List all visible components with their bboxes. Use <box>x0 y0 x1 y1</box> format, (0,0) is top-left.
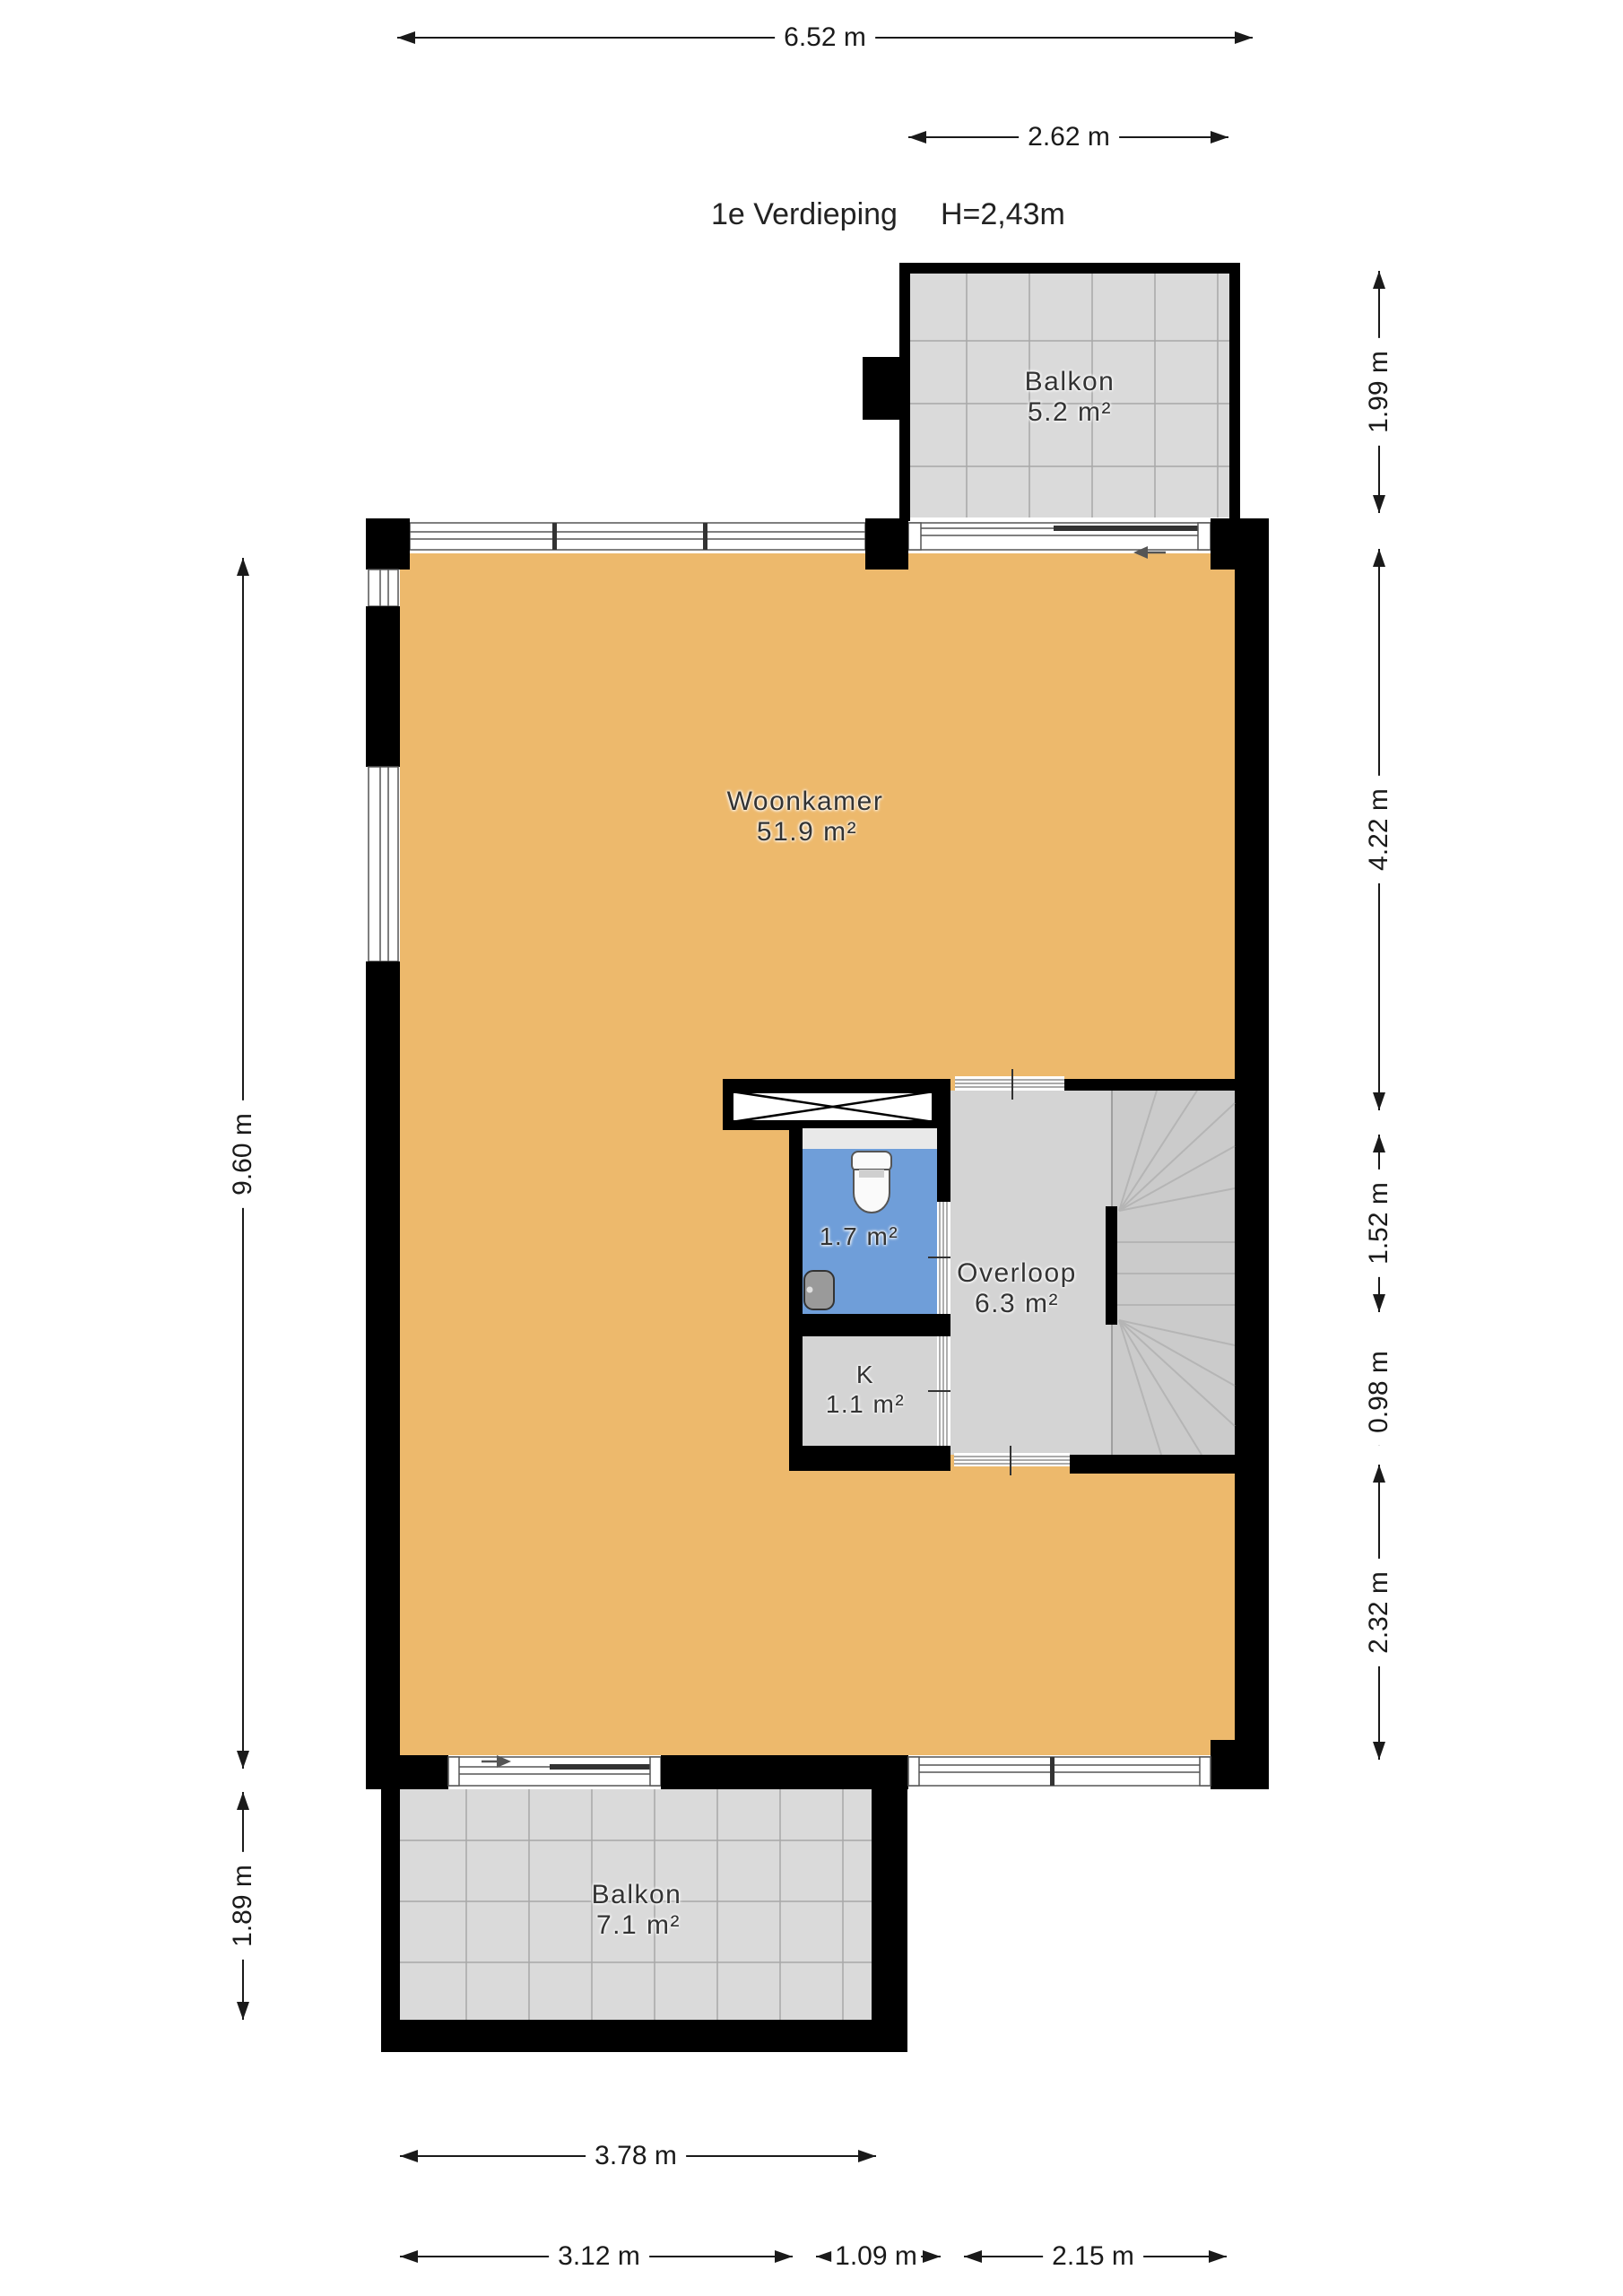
balcony-top-wall-north <box>899 263 1240 274</box>
wall-corner-se <box>1211 1740 1269 1789</box>
shaft <box>723 1079 950 1130</box>
dim-balcony-bottom-height: 1.89 m <box>227 1852 259 1960</box>
floor-name: 1e Verdieping <box>711 197 898 231</box>
dim-right-woonkamer: 4.22 m <box>1363 776 1395 883</box>
window-north-large <box>410 523 865 550</box>
dim-right-balcony-top: 1.99 m <box>1363 338 1395 446</box>
overloop-wall-north <box>1064 1079 1235 1091</box>
balcony-top-door-slider <box>1054 526 1202 531</box>
dim-bottom-left: 3.12 m <box>549 2240 649 2273</box>
dim-balcony-top-width: 2.62 m <box>1019 121 1119 153</box>
plan-title: 1e VerdiepingH=2,43m <box>711 197 1108 232</box>
dim-bottom-middle: 1.09 m <box>831 2240 921 2273</box>
toilet-cistern-ledge <box>803 1128 937 1149</box>
kast-label: K <box>856 1361 874 1389</box>
overloop-area: 6.3 m² <box>975 1289 1059 1319</box>
kast-area: 1.1 m² <box>826 1390 905 1419</box>
balcony-top-label: Balkon <box>1025 367 1115 397</box>
stair-stringer-wall <box>1106 1206 1117 1325</box>
dim-balcony-bottom-width: 3.78 m <box>586 2140 686 2172</box>
window-south <box>908 1757 1211 1786</box>
window-south-mullion <box>1050 1757 1055 1786</box>
balcony-top-wall-east <box>1229 263 1240 521</box>
dim-bottom-right: 2.15 m <box>1043 2240 1143 2273</box>
balcony-bottom-door <box>448 1757 661 1786</box>
dim-right-toilet: 1.52 m <box>1363 1170 1395 1277</box>
toilet-kast-wall <box>803 1314 937 1336</box>
balcony-bottom-door-slider <box>550 1764 655 1770</box>
wall-pier-south <box>661 1755 908 1789</box>
balcony-bottom-label: Balkon <box>592 1880 682 1910</box>
toilet-wall-west <box>789 1123 803 1471</box>
dim-right-kast: 0.98 m <box>1363 1338 1395 1446</box>
woonkamer-area: 51.9 m² <box>757 817 857 848</box>
ceiling-height: H=2,43m <box>941 197 1065 231</box>
wall-pier-north <box>865 518 908 570</box>
woonkamer-label: Woonkamer <box>727 787 884 817</box>
balcony-bottom-wall-west <box>381 1789 400 2052</box>
dim-top-width: 6.52 m <box>775 22 875 54</box>
overloop-label: Overloop <box>957 1258 1077 1289</box>
kast-wall-south <box>789 1446 950 1471</box>
dim-right-lower: 2.32 m <box>1363 1559 1395 1666</box>
balcony-top-pillar <box>863 357 901 420</box>
window-north-mullion <box>552 523 557 550</box>
window-west-small <box>369 570 398 606</box>
wall-south <box>366 1755 1211 1789</box>
floorplan-page: 1e VerdiepingH=2,43m Woonkamer 51.9 m² B… <box>0 0 1623 2296</box>
wall-west <box>366 521 400 1789</box>
dim-left-height: 9.60 m <box>227 1100 259 1208</box>
window-west-large <box>369 767 398 961</box>
overloop-wall-south <box>1070 1455 1235 1474</box>
wall-corner-sw <box>366 1755 448 1789</box>
balcony-top-area: 5.2 m² <box>1028 397 1112 428</box>
toilet-fixture-icon <box>852 1152 891 1213</box>
window-north-mullion <box>703 523 707 550</box>
toilet-area: 1.7 m² <box>820 1222 898 1251</box>
balcony-bottom-wall-south <box>381 2020 907 2052</box>
balcony-bottom-wall-east <box>872 1789 907 2052</box>
sink-icon <box>804 1271 834 1309</box>
balcony-bottom-area: 7.1 m² <box>596 1910 681 1941</box>
